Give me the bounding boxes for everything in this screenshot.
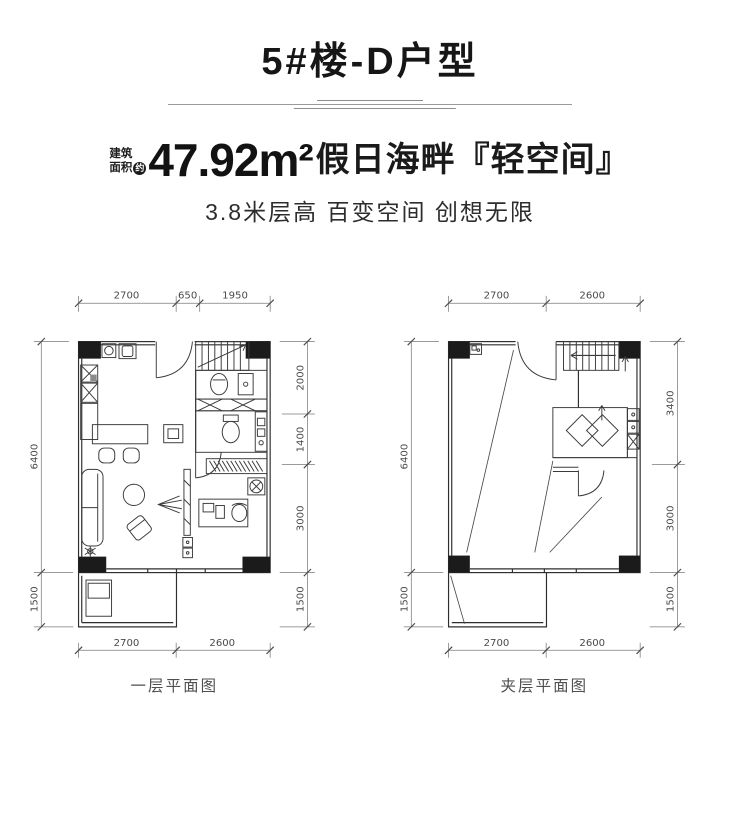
floorplan-flyer: 5#楼-D户型 建筑 面积约 47.92m² 假日海畔『轻空间』 3.8米层高 …: [0, 0, 740, 835]
storage-cabinet: [196, 399, 267, 411]
dining-table: [92, 424, 147, 462]
area-value: 47.92m²: [148, 137, 312, 183]
sofa: [82, 469, 103, 546]
lower-door: [553, 467, 604, 496]
dim-right-4: 1500: [296, 586, 307, 612]
dim-bottom-1: 2700: [484, 638, 510, 649]
dim-top-3: 1950: [222, 290, 248, 301]
direction-symbol: [158, 496, 181, 513]
plans-row: 2700 650 1950 6400 1500 2000 1400 3000 1…: [0, 269, 740, 708]
area-headline: 建筑 面积约 47.92m² 假日海畔『轻空间』: [0, 137, 740, 183]
stairs: [196, 341, 249, 370]
walls: [449, 341, 641, 626]
dim-left-1: 6400: [30, 443, 41, 469]
dim-right-2: 3000: [666, 505, 677, 531]
dim-guides: [34, 295, 315, 657]
dim-top-2: 650: [178, 290, 197, 301]
dim-left-1: 6400: [400, 443, 411, 469]
dim-right-3: 1500: [666, 586, 677, 612]
balcony-storage: [86, 580, 112, 616]
tv-cabinet: [183, 469, 193, 557]
divider-line-short: [317, 100, 423, 101]
first-floor-plan-svg: 2700 650 1950 6400 1500 2000 1400 3000 1…: [20, 269, 350, 708]
subtitle: 3.8米层高 百变空间 创想无限: [0, 193, 740, 227]
dim-right-2: 1400: [296, 426, 307, 452]
entry-door: [156, 341, 192, 377]
ac-unit: [248, 477, 265, 494]
door-gap: [155, 338, 194, 345]
mop-sink-inner: [168, 428, 179, 438]
dim-top-2: 2600: [579, 290, 605, 301]
headline-suffix: 假日海畔『轻空间』: [316, 142, 631, 182]
area-label: 建筑 面积约: [109, 148, 146, 183]
dim-top-1: 2700: [484, 290, 510, 301]
plan-caption: 夹层平面图: [500, 676, 588, 694]
wardrobe: [206, 458, 267, 473]
page-title: 5#楼-D户型: [0, 0, 740, 86]
stairs: [564, 341, 629, 371]
area-label-bottom: 面积: [109, 162, 132, 176]
armchair: [126, 514, 153, 541]
columns: [79, 341, 271, 572]
balcony-line: [451, 575, 465, 623]
divider-line-medium: [294, 108, 456, 109]
door-gap: [516, 338, 556, 345]
coffee-table: [123, 484, 144, 505]
dim-right-3: 3000: [296, 505, 307, 531]
dim-guides: [404, 295, 685, 657]
dim-top-1: 2700: [114, 290, 140, 301]
dim-bottom-1: 2700: [114, 638, 140, 649]
mezzanine-plan-svg: 2700 2600 6400 1500 3400 3000 1500 2700 …: [390, 269, 720, 708]
desk: [199, 499, 248, 527]
divider-line-long: [168, 104, 572, 105]
washbasin-area: [196, 370, 267, 399]
plan-caption: 一层平面图: [130, 677, 218, 694]
dim-bottom-2: 2600: [209, 638, 235, 649]
dim-right-1: 2000: [296, 365, 307, 391]
plant: [85, 546, 96, 557]
mezzanine-door: [518, 341, 556, 379]
dim-left-2: 1500: [30, 586, 41, 612]
bathroom: [196, 410, 267, 452]
mop-sink: [164, 424, 183, 442]
dim-left-2: 1500: [400, 586, 411, 612]
columns: [449, 341, 641, 572]
void-lines: [467, 350, 602, 552]
mezzanine-bedroom: [553, 405, 639, 457]
dim-right-1: 3400: [666, 390, 677, 416]
approx-badge: 约: [133, 162, 146, 175]
walls: [79, 341, 271, 626]
dim-bottom-2: 2600: [579, 638, 605, 649]
decorative-divider: [168, 100, 572, 113]
area-label-top: 建筑: [109, 148, 146, 162]
